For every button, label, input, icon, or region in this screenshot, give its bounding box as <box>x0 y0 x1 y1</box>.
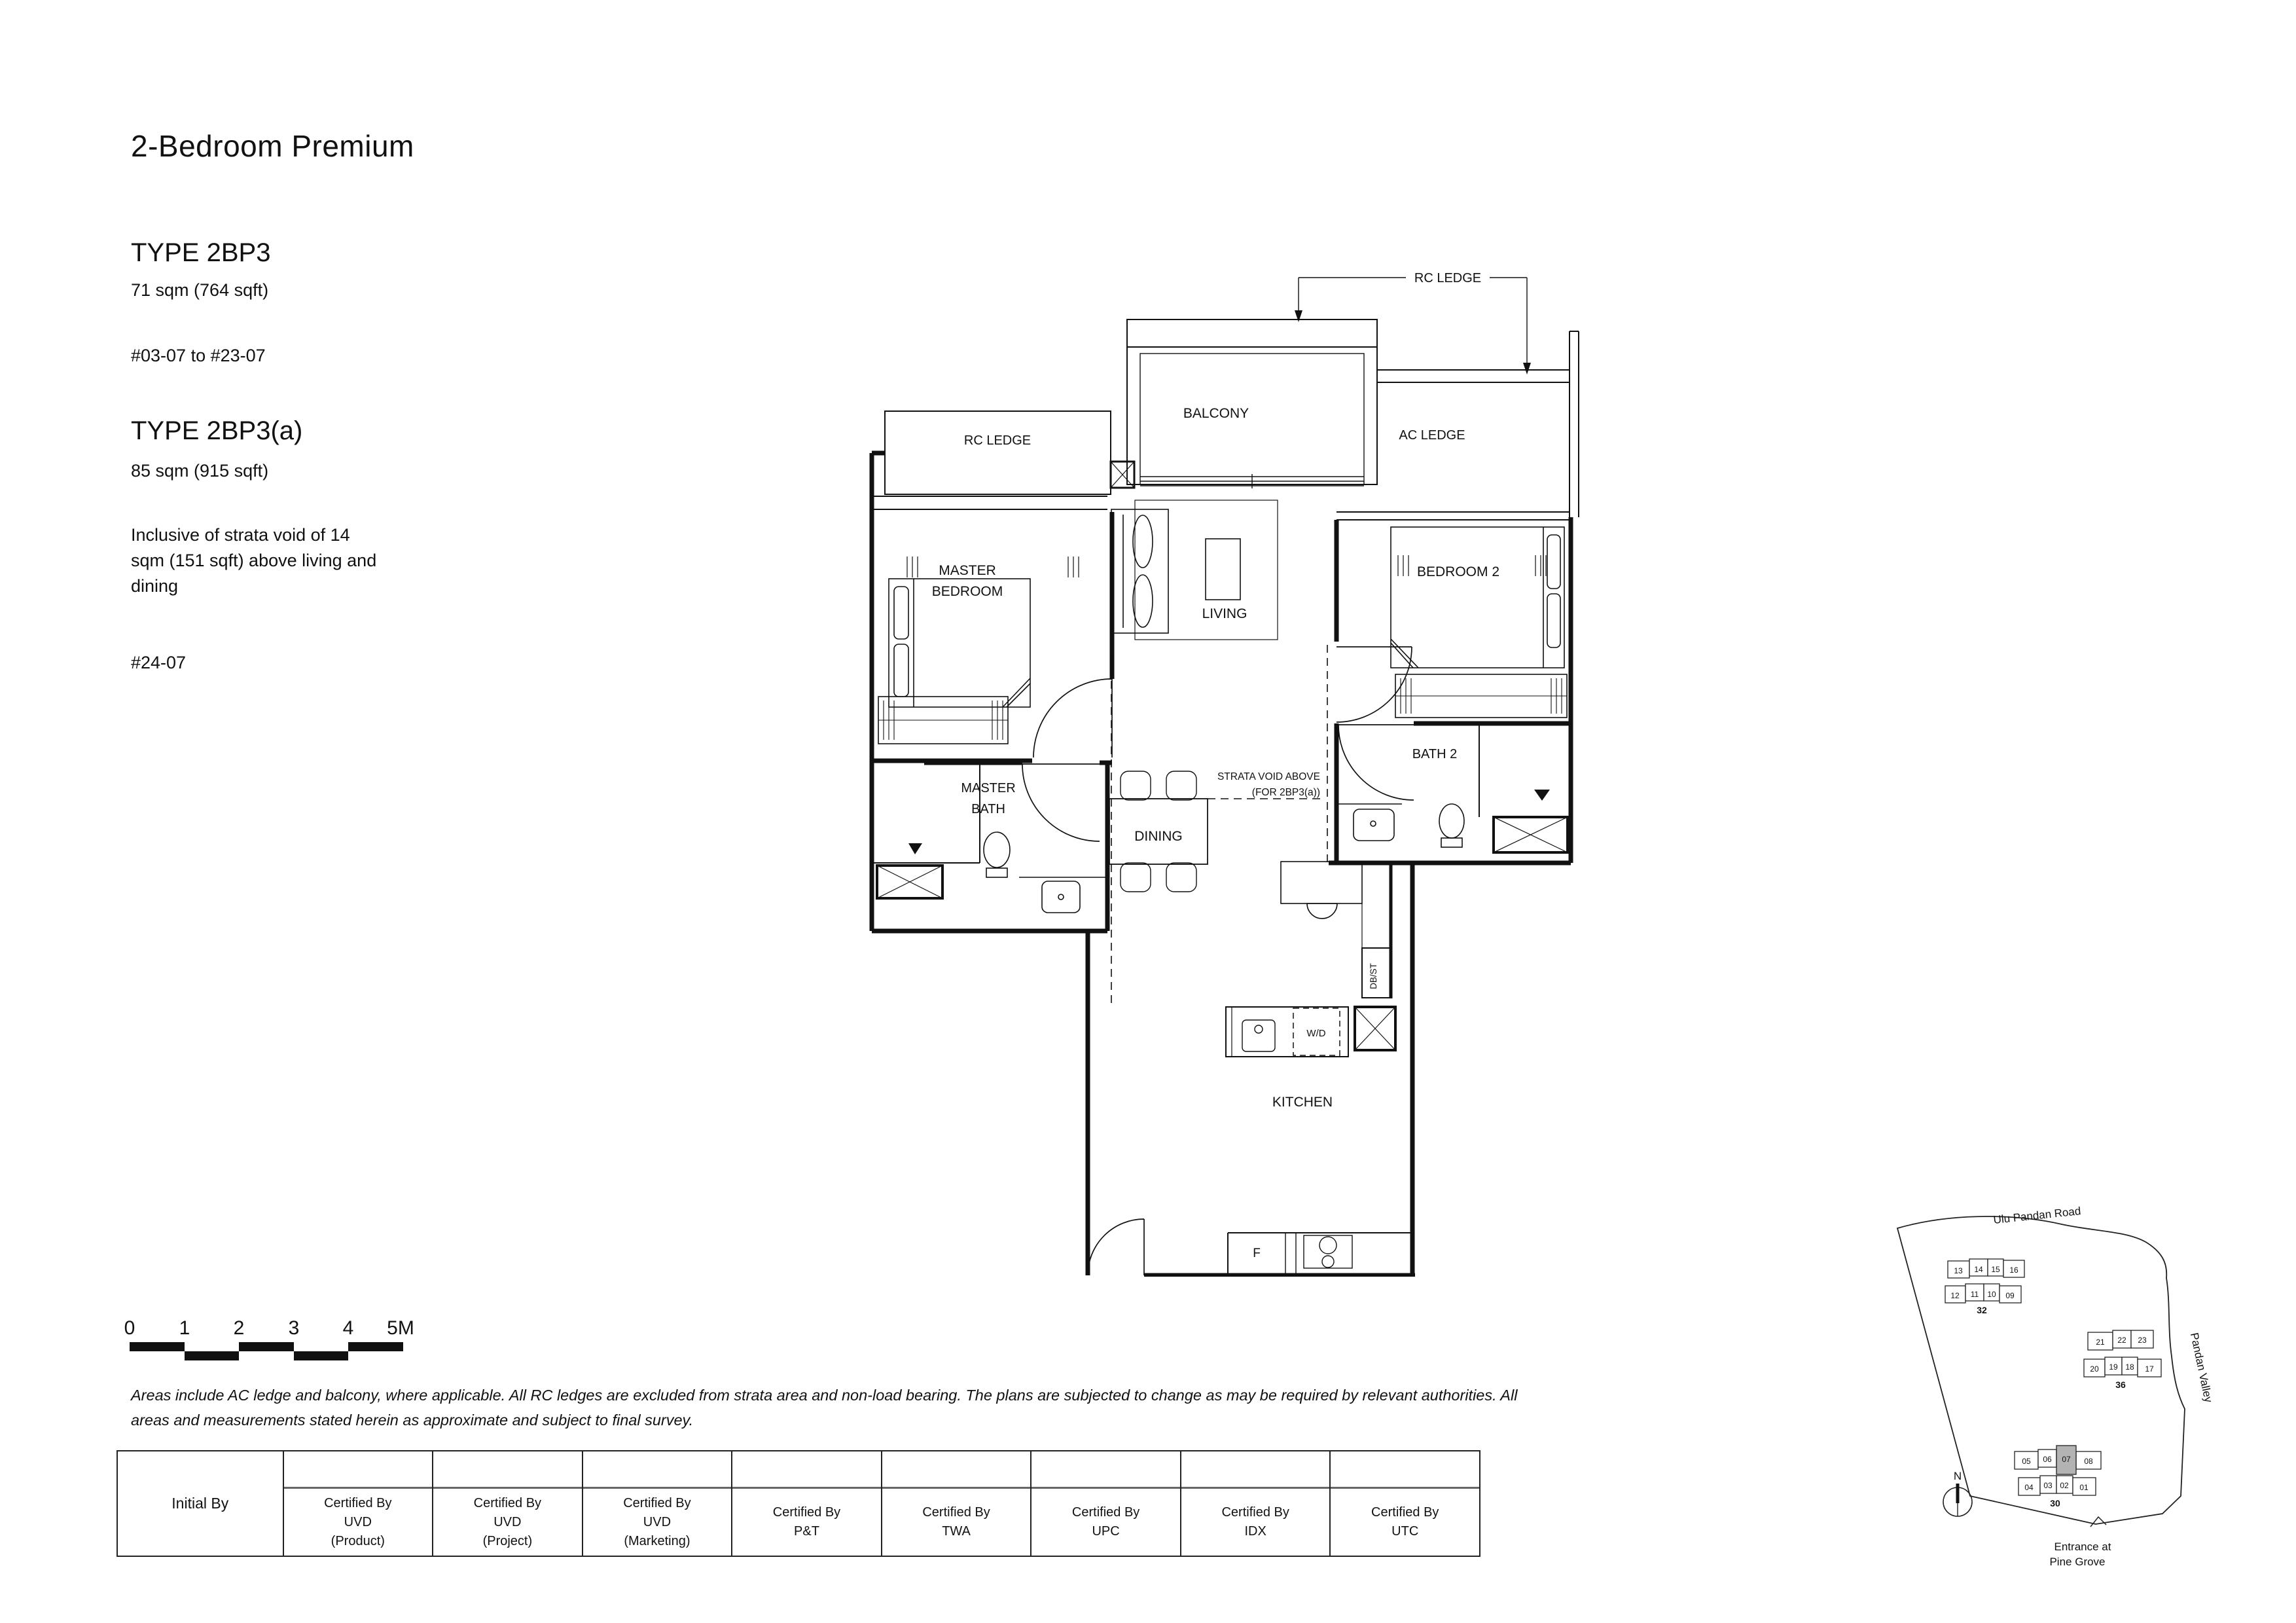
type-2bp3a-heading: TYPE 2BP3(a) <box>131 416 302 446</box>
unit-15: 15 <box>1991 1265 2000 1274</box>
bath2-label: BATH 2 <box>1412 747 1458 761</box>
master-bath-shaft <box>877 866 942 898</box>
block-36-label: 36 <box>2115 1379 2126 1390</box>
entrance-label-1: Entrance at <box>2054 1541 2111 1553</box>
initial-by-cell: Initial By <box>118 1451 283 1556</box>
kitchen-counter-top <box>1226 1007 1348 1057</box>
scale-bar-labels: 0 1 2 3 4 5M <box>124 1317 414 1339</box>
master-bed <box>889 556 1079 707</box>
type-2bp3a-units: #24-07 <box>131 650 186 676</box>
unit-23: 23 <box>2138 1336 2147 1345</box>
type-2bp3-heading: TYPE 2BP3 <box>131 238 270 268</box>
cert-column: Certified By UPC <box>1030 1451 1180 1556</box>
floor-plan: RC LEDGE BALCONY RC LEDGE AC LEDGE MASTE… <box>838 255 1597 1277</box>
north-arrow-icon: N <box>1943 1470 1972 1516</box>
scale-1: 1 <box>179 1317 190 1339</box>
entrance-label-2: Pine Grove <box>2049 1556 2105 1568</box>
cert-label: Certified By UVD (Marketing) <box>583 1489 732 1556</box>
entrance-notch <box>2090 1517 2106 1527</box>
unit-12: 12 <box>1950 1291 1960 1300</box>
strata-void-label-2: (FOR 2BP3(a)) <box>1252 787 1320 798</box>
certification-table: Initial By Certified By UVD (Product) Ce… <box>117 1450 1480 1557</box>
unit-09: 09 <box>2005 1291 2015 1300</box>
unit-04: 04 <box>2024 1483 2034 1492</box>
coffee-table <box>1206 539 1240 600</box>
cert-label: Certified By UTC <box>1331 1489 1479 1556</box>
cert-column: Certified By TWA <box>881 1451 1031 1556</box>
strata-void-dashes <box>1111 645 1327 1005</box>
bath2-shaft <box>1494 817 1568 852</box>
balcony-junction-box <box>1111 462 1134 488</box>
study-desk <box>1281 862 1362 948</box>
bedroom2-bed <box>1391 527 1564 668</box>
scale-2: 2 <box>234 1317 245 1339</box>
road-label-pandan-valley: Pandan Valley <box>2188 1332 2215 1404</box>
strata-void-label-1: STRATA VOID ABOVE <box>1217 771 1320 782</box>
cert-column: Certified By UVD (Project) <box>432 1451 582 1556</box>
cert-label: Certified By UVD (Product) <box>284 1489 433 1556</box>
signature-space <box>882 1451 1031 1489</box>
unit-16: 16 <box>2009 1266 2018 1275</box>
unit-07: 07 <box>2062 1455 2071 1464</box>
cert-label: Certified By IDX <box>1181 1489 1330 1556</box>
cert-column: Certified By P&T <box>731 1451 881 1556</box>
ac-ledge-label: AC LEDGE <box>1399 428 1465 443</box>
signature-space <box>583 1451 732 1489</box>
cert-column: Certified By IDX <box>1180 1451 1330 1556</box>
block-32: 13 14 15 16 12 11 10 09 32 <box>1945 1259 2024 1315</box>
master-bedroom-label-1: MASTER <box>939 563 996 578</box>
bedroom2-wardrobe <box>1395 674 1567 718</box>
unit-06: 06 <box>2043 1455 2052 1464</box>
signature-space <box>433 1451 582 1489</box>
kitchen-label: KITCHEN <box>1272 1095 1333 1110</box>
signature-space <box>1181 1451 1330 1489</box>
kitchen-shaft <box>1355 1007 1395 1050</box>
block-36: 21 22 23 20 19 18 17 36 <box>2084 1330 2161 1390</box>
scale-3: 3 <box>289 1317 300 1339</box>
unit-03: 03 <box>2043 1481 2053 1490</box>
cert-label: Certified By P&T <box>732 1489 881 1556</box>
disclaimer-text: Areas include AC ledge and balcony, wher… <box>131 1383 1518 1432</box>
block-30: 05 06 07 08 04 03 02 01 30 <box>2015 1446 2101 1508</box>
balcony-outline <box>1127 319 1377 488</box>
scale-bar-segments <box>130 1342 403 1360</box>
signature-space <box>284 1451 433 1489</box>
scale-5m: 5M <box>387 1317 414 1339</box>
cert-label: Certified By UVD (Project) <box>433 1489 582 1556</box>
type-2bp3-area: 71 sqm (764 sqft) <box>131 278 268 303</box>
block-30-label: 30 <box>2050 1498 2060 1508</box>
unit-14: 14 <box>1974 1265 1983 1274</box>
wd-label: W/D <box>1306 1028 1325 1039</box>
fridge-label: F <box>1253 1247 1261 1260</box>
block-32-label: 32 <box>1977 1305 1987 1315</box>
balcony-label: BALCONY <box>1183 406 1249 421</box>
unit-11: 11 <box>1971 1290 1979 1299</box>
bedroom2-label: BEDROOM 2 <box>1417 564 1499 579</box>
master-bath-label-2: BATH <box>971 802 1005 816</box>
cert-column: Certified By UVD (Product) <box>283 1451 433 1556</box>
signature-space <box>732 1451 881 1489</box>
sofa <box>1111 509 1168 633</box>
unit-17: 17 <box>2145 1364 2154 1374</box>
type-2bp3a-area: 85 sqm (915 sqft) <box>131 458 268 484</box>
scale-4: 4 <box>343 1317 354 1339</box>
master-bedroom-label-2: BEDROOM <box>932 584 1003 599</box>
north-label: N <box>1954 1470 1962 1482</box>
cert-label: Certified By UPC <box>1031 1489 1180 1556</box>
unit-05: 05 <box>2022 1457 2031 1466</box>
rc-ledge-left-outline <box>872 411 1111 509</box>
master-bath-label-1: MASTER <box>961 781 1015 795</box>
cert-label: Certified By TWA <box>882 1489 1031 1556</box>
dining-label: DINING <box>1134 829 1183 844</box>
master-wardrobe <box>878 697 1008 744</box>
unit-08: 08 <box>2084 1457 2093 1466</box>
cert-column: Certified By UTC <box>1329 1451 1479 1556</box>
scale-0: 0 <box>124 1317 135 1339</box>
rc-ledge-top-label: RC LEDGE <box>1414 271 1481 285</box>
ac-ledge-outline <box>1336 331 1579 520</box>
door-arcs <box>1022 647 1414 1277</box>
scale-bar: 0 1 2 3 4 5M <box>123 1315 431 1367</box>
unit-10: 10 <box>1987 1290 1996 1299</box>
unit-21: 21 <box>2096 1338 2105 1347</box>
living-label: LIVING <box>1202 606 1247 621</box>
unit-13: 13 <box>1954 1266 1963 1275</box>
dbst-label: DB/ST <box>1369 963 1378 989</box>
unit-01: 01 <box>2079 1483 2089 1492</box>
road-label-ulu-pandan: Ulu Pandan Road <box>1993 1205 2081 1226</box>
type-2bp3-units: #03-07 to #23-07 <box>131 343 266 369</box>
unit-02: 02 <box>2060 1481 2069 1490</box>
unit-18: 18 <box>2125 1362 2134 1372</box>
cert-column: Certified By UVD (Marketing) <box>582 1451 732 1556</box>
site-plan: 13 14 15 16 12 11 10 09 32 21 22 23 20 1… <box>1865 1165 2296 1571</box>
unit-22: 22 <box>2117 1336 2126 1345</box>
rc-ledge-leader <box>1295 278 1531 374</box>
signature-space <box>1331 1451 1479 1489</box>
unit-19: 19 <box>2109 1362 2118 1372</box>
rc-ledge-left-label: RC LEDGE <box>964 433 1031 448</box>
type-2bp3a-note: Inclusive of strata void of 14 sqm (151 … <box>131 522 380 599</box>
signature-space <box>1031 1451 1180 1489</box>
page-title: 2-Bedroom Premium <box>131 128 414 164</box>
unit-20: 20 <box>2090 1364 2099 1374</box>
